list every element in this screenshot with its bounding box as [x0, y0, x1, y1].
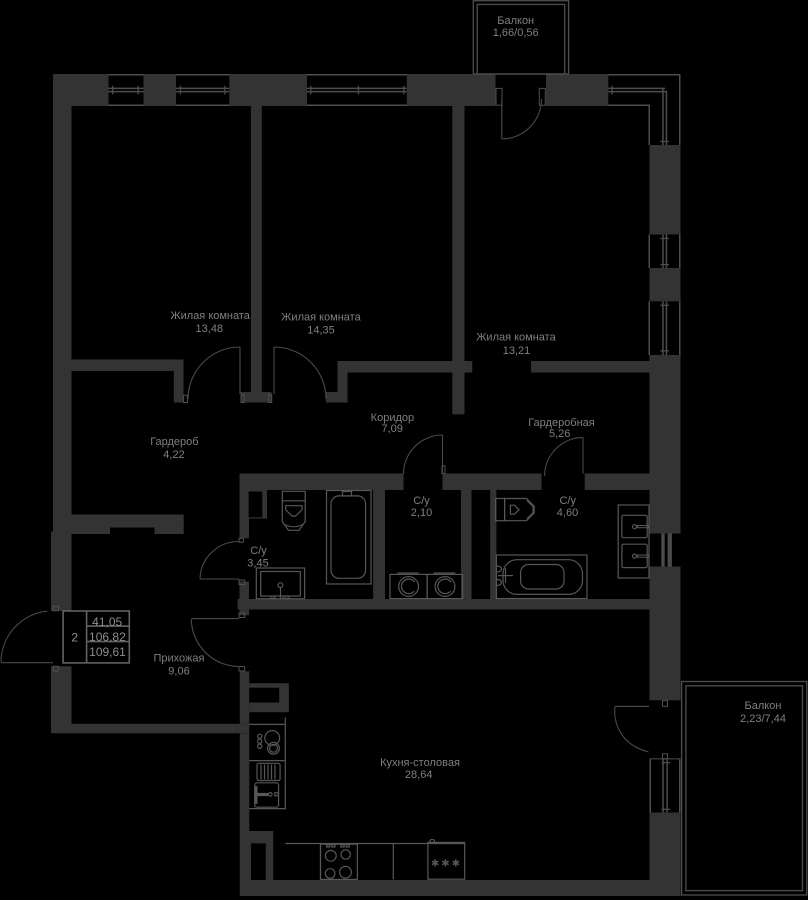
svg-text:3,45: 3,45 [247, 558, 268, 570]
svg-text:9,06: 9,06 [168, 666, 189, 678]
svg-text:41,05: 41,05 [92, 615, 122, 629]
svg-text:13,48: 13,48 [196, 323, 224, 335]
svg-text:Балкон: Балкон [497, 15, 534, 27]
svg-text:Жилая комната: Жилая комната [281, 311, 361, 323]
svg-text:106,82: 106,82 [89, 630, 126, 644]
svg-text:Прихожая: Прихожая [154, 653, 205, 665]
svg-text:2,10: 2,10 [411, 507, 432, 519]
svg-text:109,61: 109,61 [89, 645, 126, 659]
svg-text:1,66/0,56: 1,66/0,56 [493, 27, 539, 39]
svg-text:Кухня-столовая: Кухня-столовая [380, 757, 460, 769]
svg-text:С/у: С/у [250, 545, 267, 557]
svg-text:4,22: 4,22 [163, 449, 184, 461]
svg-text:13,21: 13,21 [503, 345, 531, 357]
svg-text:2: 2 [71, 631, 78, 645]
svg-text:С/у: С/у [559, 495, 576, 507]
svg-text:28,64: 28,64 [405, 769, 433, 781]
svg-text:4,60: 4,60 [557, 507, 578, 519]
svg-text:Гардероб: Гардероб [150, 436, 198, 448]
svg-text:Гардеробная: Гардеробная [528, 417, 595, 429]
svg-text:2,23/7,44: 2,23/7,44 [740, 713, 786, 725]
svg-text:Балкон: Балкон [745, 700, 782, 712]
svg-text:С/у: С/у [413, 495, 430, 507]
svg-text:5,26: 5,26 [549, 428, 570, 440]
svg-text:✱✱✱: ✱✱✱ [431, 859, 462, 870]
svg-text:Жилая комната: Жилая комната [170, 310, 250, 322]
svg-text:Жилая комната: Жилая комната [476, 332, 556, 344]
svg-text:14,35: 14,35 [307, 325, 335, 337]
svg-text:7,09: 7,09 [381, 423, 402, 435]
